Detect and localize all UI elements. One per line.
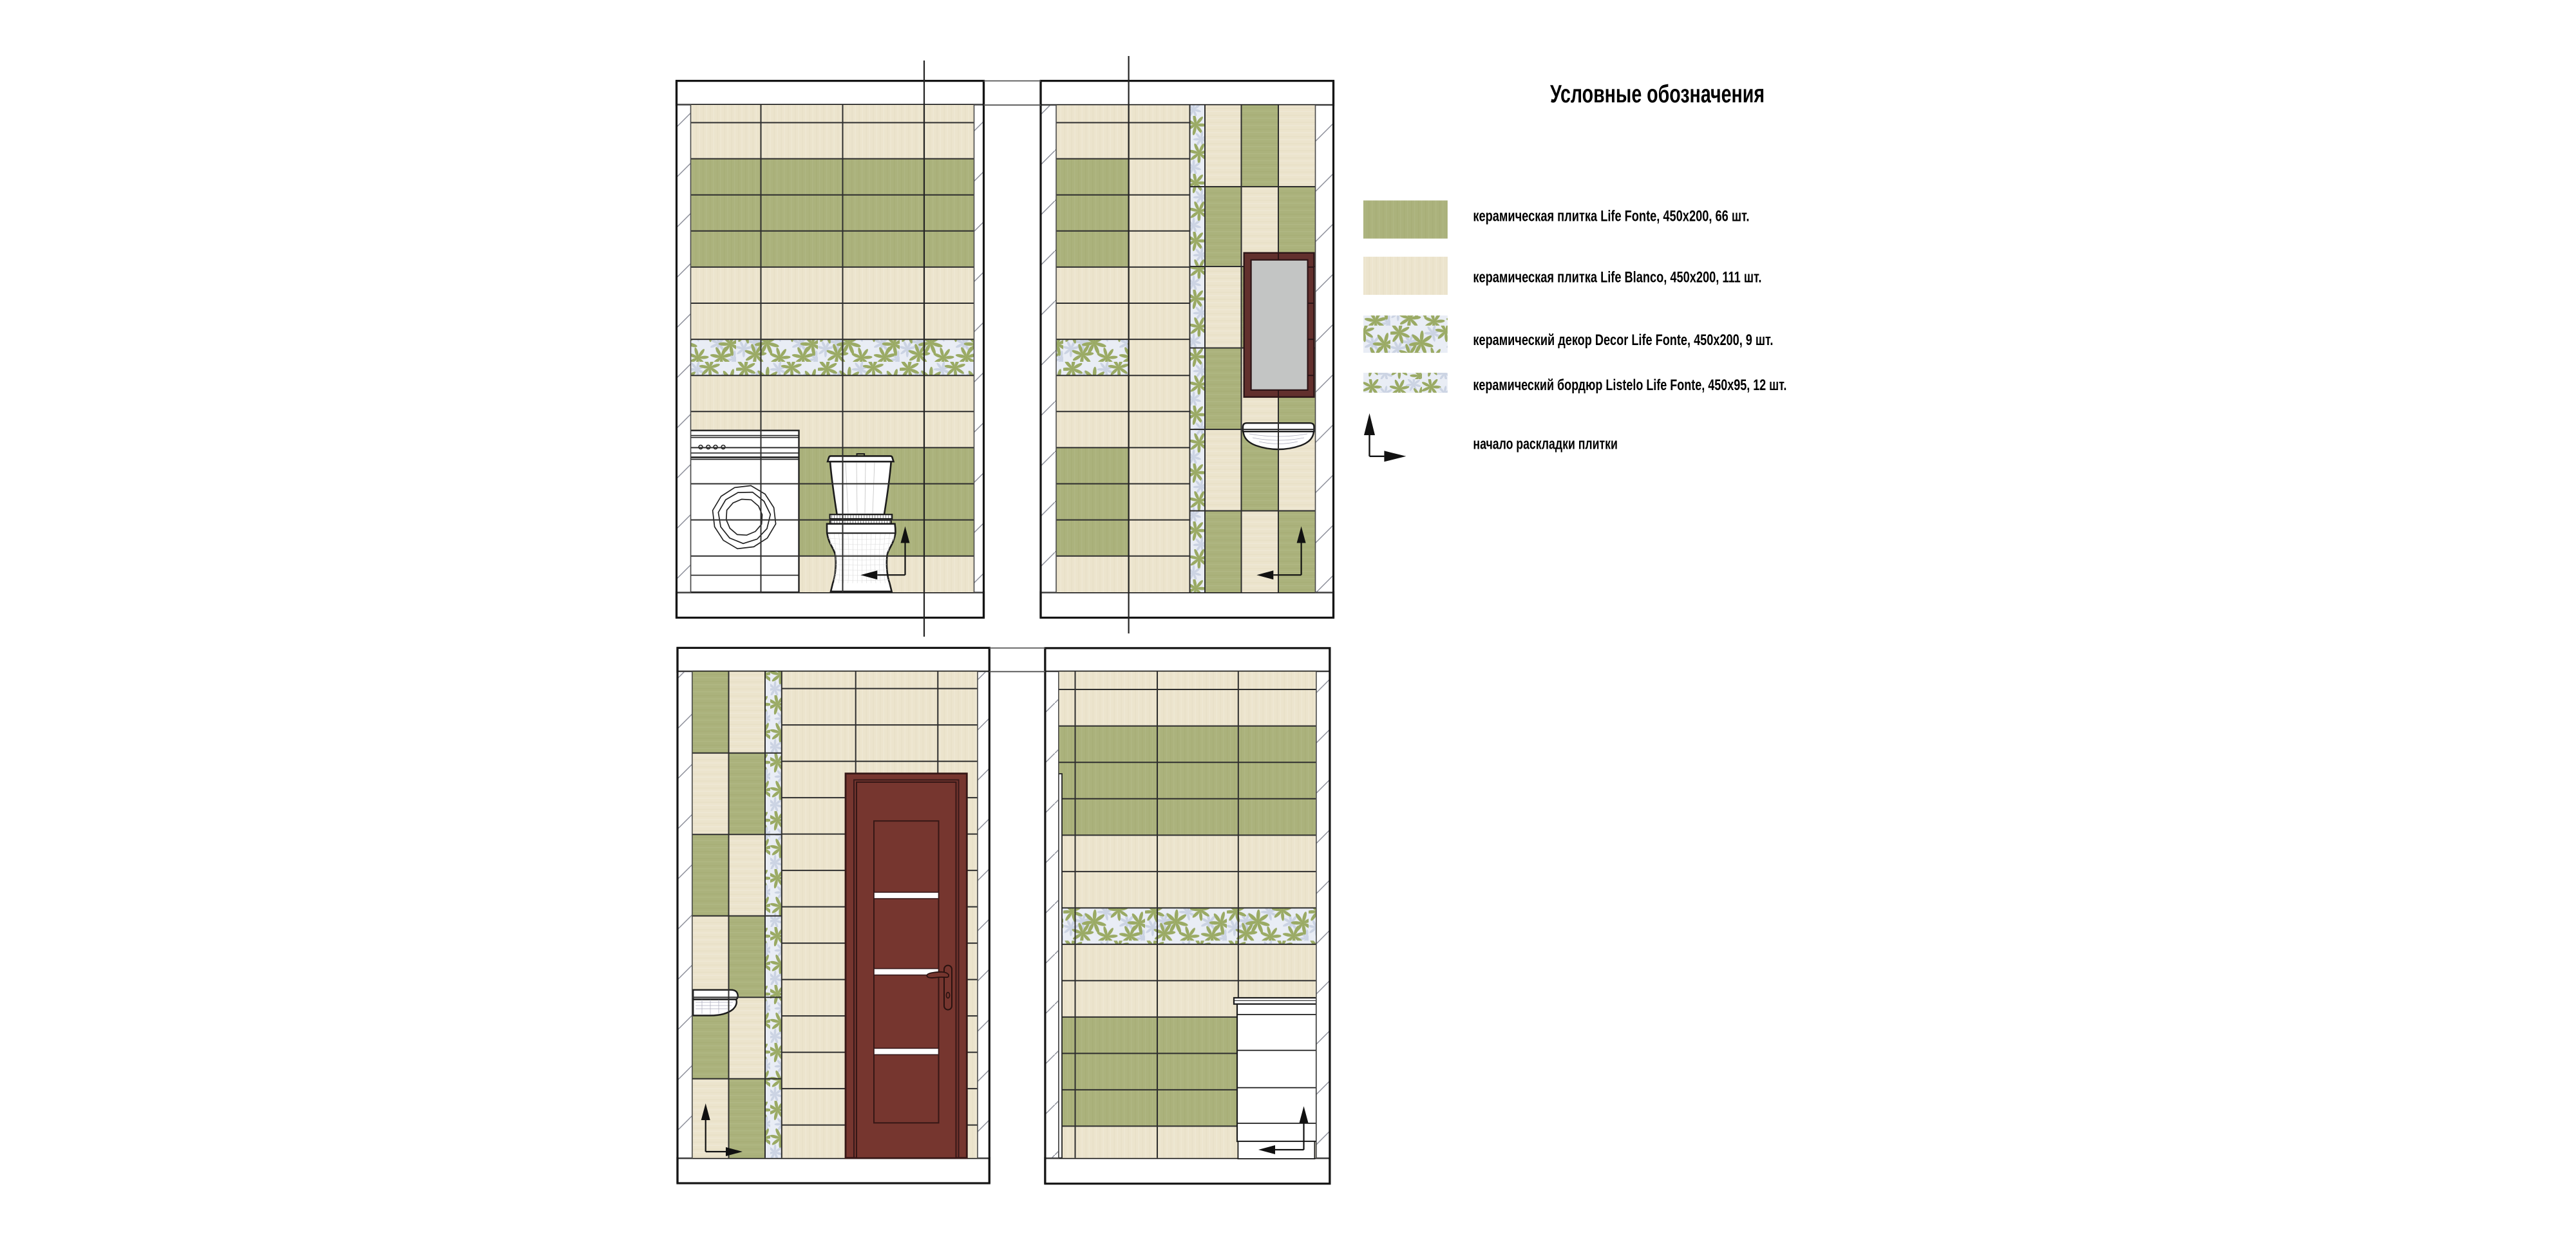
svg-text:керамическая плитка Life Blanc: керамическая плитка Life Blanco, 450x200… [1473, 269, 1761, 286]
svg-text:Условные обозначения: Условные обозначения [1550, 80, 1765, 108]
svg-text:керамическая плитка Life Fonte: керамическая плитка Life Fonte, 450x200,… [1473, 207, 1749, 225]
svg-text:керамический бордюр Listelo Li: керамический бордюр Listelo Life Fonte, … [1473, 377, 1786, 394]
svg-text:керамический декор Decor Life: керамический декор Decor Life Fonte, 450… [1473, 332, 1773, 349]
svg-text:начало раскладки плитки: начало раскладки плитки [1473, 436, 1618, 453]
